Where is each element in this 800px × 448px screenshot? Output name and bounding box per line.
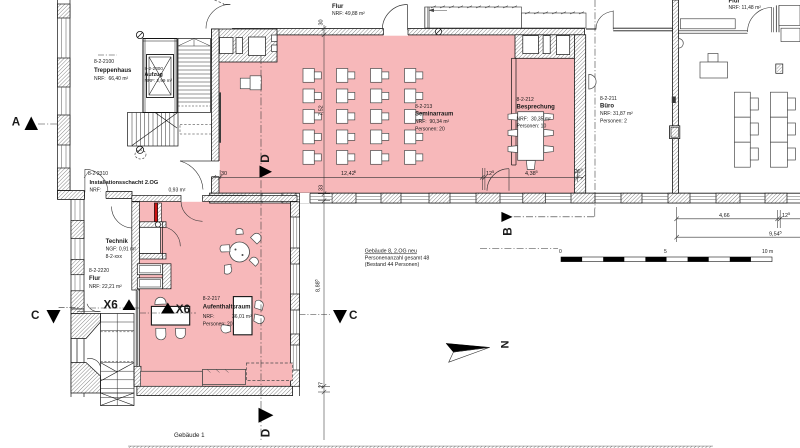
svg-text:Flur: Flur	[729, 0, 741, 5]
svg-text:8-2-217: 8-2-217	[203, 296, 220, 302]
svg-text:8-2-212: 8-2-212	[517, 97, 534, 103]
svg-text:Büro: Büro	[600, 104, 614, 110]
svg-text:8-2-213: 8-2-213	[415, 104, 432, 110]
svg-text:Aufenthaltsraum: Aufenthaltsraum	[203, 305, 251, 311]
svg-text:12,42: 12,42	[341, 171, 355, 177]
svg-text:Treppenhaus: Treppenhaus	[94, 68, 132, 74]
svg-text:36,01 m²: 36,01 m²	[232, 314, 252, 320]
svg-text:Technik: Technik	[106, 239, 129, 245]
svg-text:Personen: 2: Personen: 2	[600, 119, 627, 125]
svg-text:10 m: 10 m	[762, 249, 773, 255]
svg-text:8-2-xxx: 8-2-xxx	[106, 254, 123, 260]
svg-text:4,66: 4,66	[719, 213, 730, 219]
svg-text:NRF: 22,21 m²: NRF: 22,21 m²	[89, 284, 122, 290]
svg-text:NRF: 49,88 m²: NRF: 49,88 m²	[332, 11, 365, 17]
svg-text:A: A	[12, 116, 21, 129]
svg-text:0,93 m²: 0,93 m²	[169, 188, 186, 194]
svg-text:9,54: 9,54	[769, 232, 780, 238]
svg-text:NRF: 90,34 m²: NRF: 90,34 m²	[415, 119, 450, 125]
svg-text:Flur: Flur	[332, 4, 344, 10]
svg-text:D: D	[259, 429, 272, 437]
svg-text:Flur: Flur	[89, 276, 101, 282]
svg-text:NRF: 31,87 m²: NRF: 31,87 m²	[600, 111, 633, 117]
svg-text:B: B	[501, 227, 514, 235]
svg-text:Gebäude 8, 2.OG neu: Gebäude 8, 2.OG neu	[365, 249, 417, 255]
svg-text:Installationsschacht 2.OG: Installationsschacht 2.OG	[90, 180, 159, 186]
svg-text:NRF: 11,48 m²: NRF: 11,48 m²	[729, 5, 762, 11]
svg-text:NRF: 30,35 m²: NRF: 30,35 m²	[517, 117, 552, 123]
svg-text:8-2-2300: 8-2-2300	[145, 66, 164, 71]
svg-text:X6: X6	[104, 299, 119, 312]
svg-text:Personenanzahl gesamt 48: Personenanzahl gesamt 48	[365, 255, 430, 261]
svg-text:C: C	[349, 309, 358, 322]
svg-text:Besprechung: Besprechung	[517, 105, 556, 111]
svg-text:D: D	[259, 154, 272, 162]
svg-text:Gebäude 1: Gebäude 1	[174, 432, 205, 439]
svg-text:(Bestand 44 Personen): (Bestand 44 Personen)	[365, 262, 420, 268]
svg-text:Personen: 20: Personen: 20	[203, 322, 233, 328]
svg-text:8,88: 8,88	[316, 281, 322, 292]
svg-text:8-2-2220: 8-2-2220	[89, 268, 109, 274]
svg-text:C: C	[31, 309, 40, 322]
svg-text:X6: X6	[176, 303, 191, 316]
svg-text:Seminarraum: Seminarraum	[415, 112, 453, 118]
svg-text:7,52: 7,52	[319, 105, 325, 116]
svg-text:33: 33	[319, 185, 325, 191]
svg-text:NGF: 0,91 m²: NGF: 0,91 m²	[106, 247, 137, 253]
svg-text:8-2-2310: 8-2-2310	[88, 171, 108, 177]
svg-text:N: N	[498, 341, 510, 349]
svg-text:Personen: 10: Personen: 10	[517, 124, 547, 130]
svg-text:4,38: 4,38	[525, 171, 536, 177]
svg-text:NRF: 2,99 m²: NRF: 2,99 m²	[145, 78, 173, 83]
svg-text:30: 30	[319, 19, 325, 25]
svg-text:30: 30	[221, 171, 227, 177]
svg-text:8-2-211: 8-2-211	[600, 96, 617, 102]
svg-text:NRF:: NRF:	[203, 314, 215, 320]
svg-text:NRF: 66,40 m²: NRF: 66,40 m²	[94, 76, 129, 82]
svg-text:27: 27	[319, 382, 325, 388]
svg-text:Personen: 20: Personen: 20	[415, 127, 445, 133]
svg-text:0: 0	[559, 249, 562, 255]
svg-text:5: 5	[664, 249, 667, 255]
svg-text:8-2-2100: 8-2-2100	[94, 59, 114, 65]
svg-text:NRF:: NRF:	[90, 188, 102, 194]
